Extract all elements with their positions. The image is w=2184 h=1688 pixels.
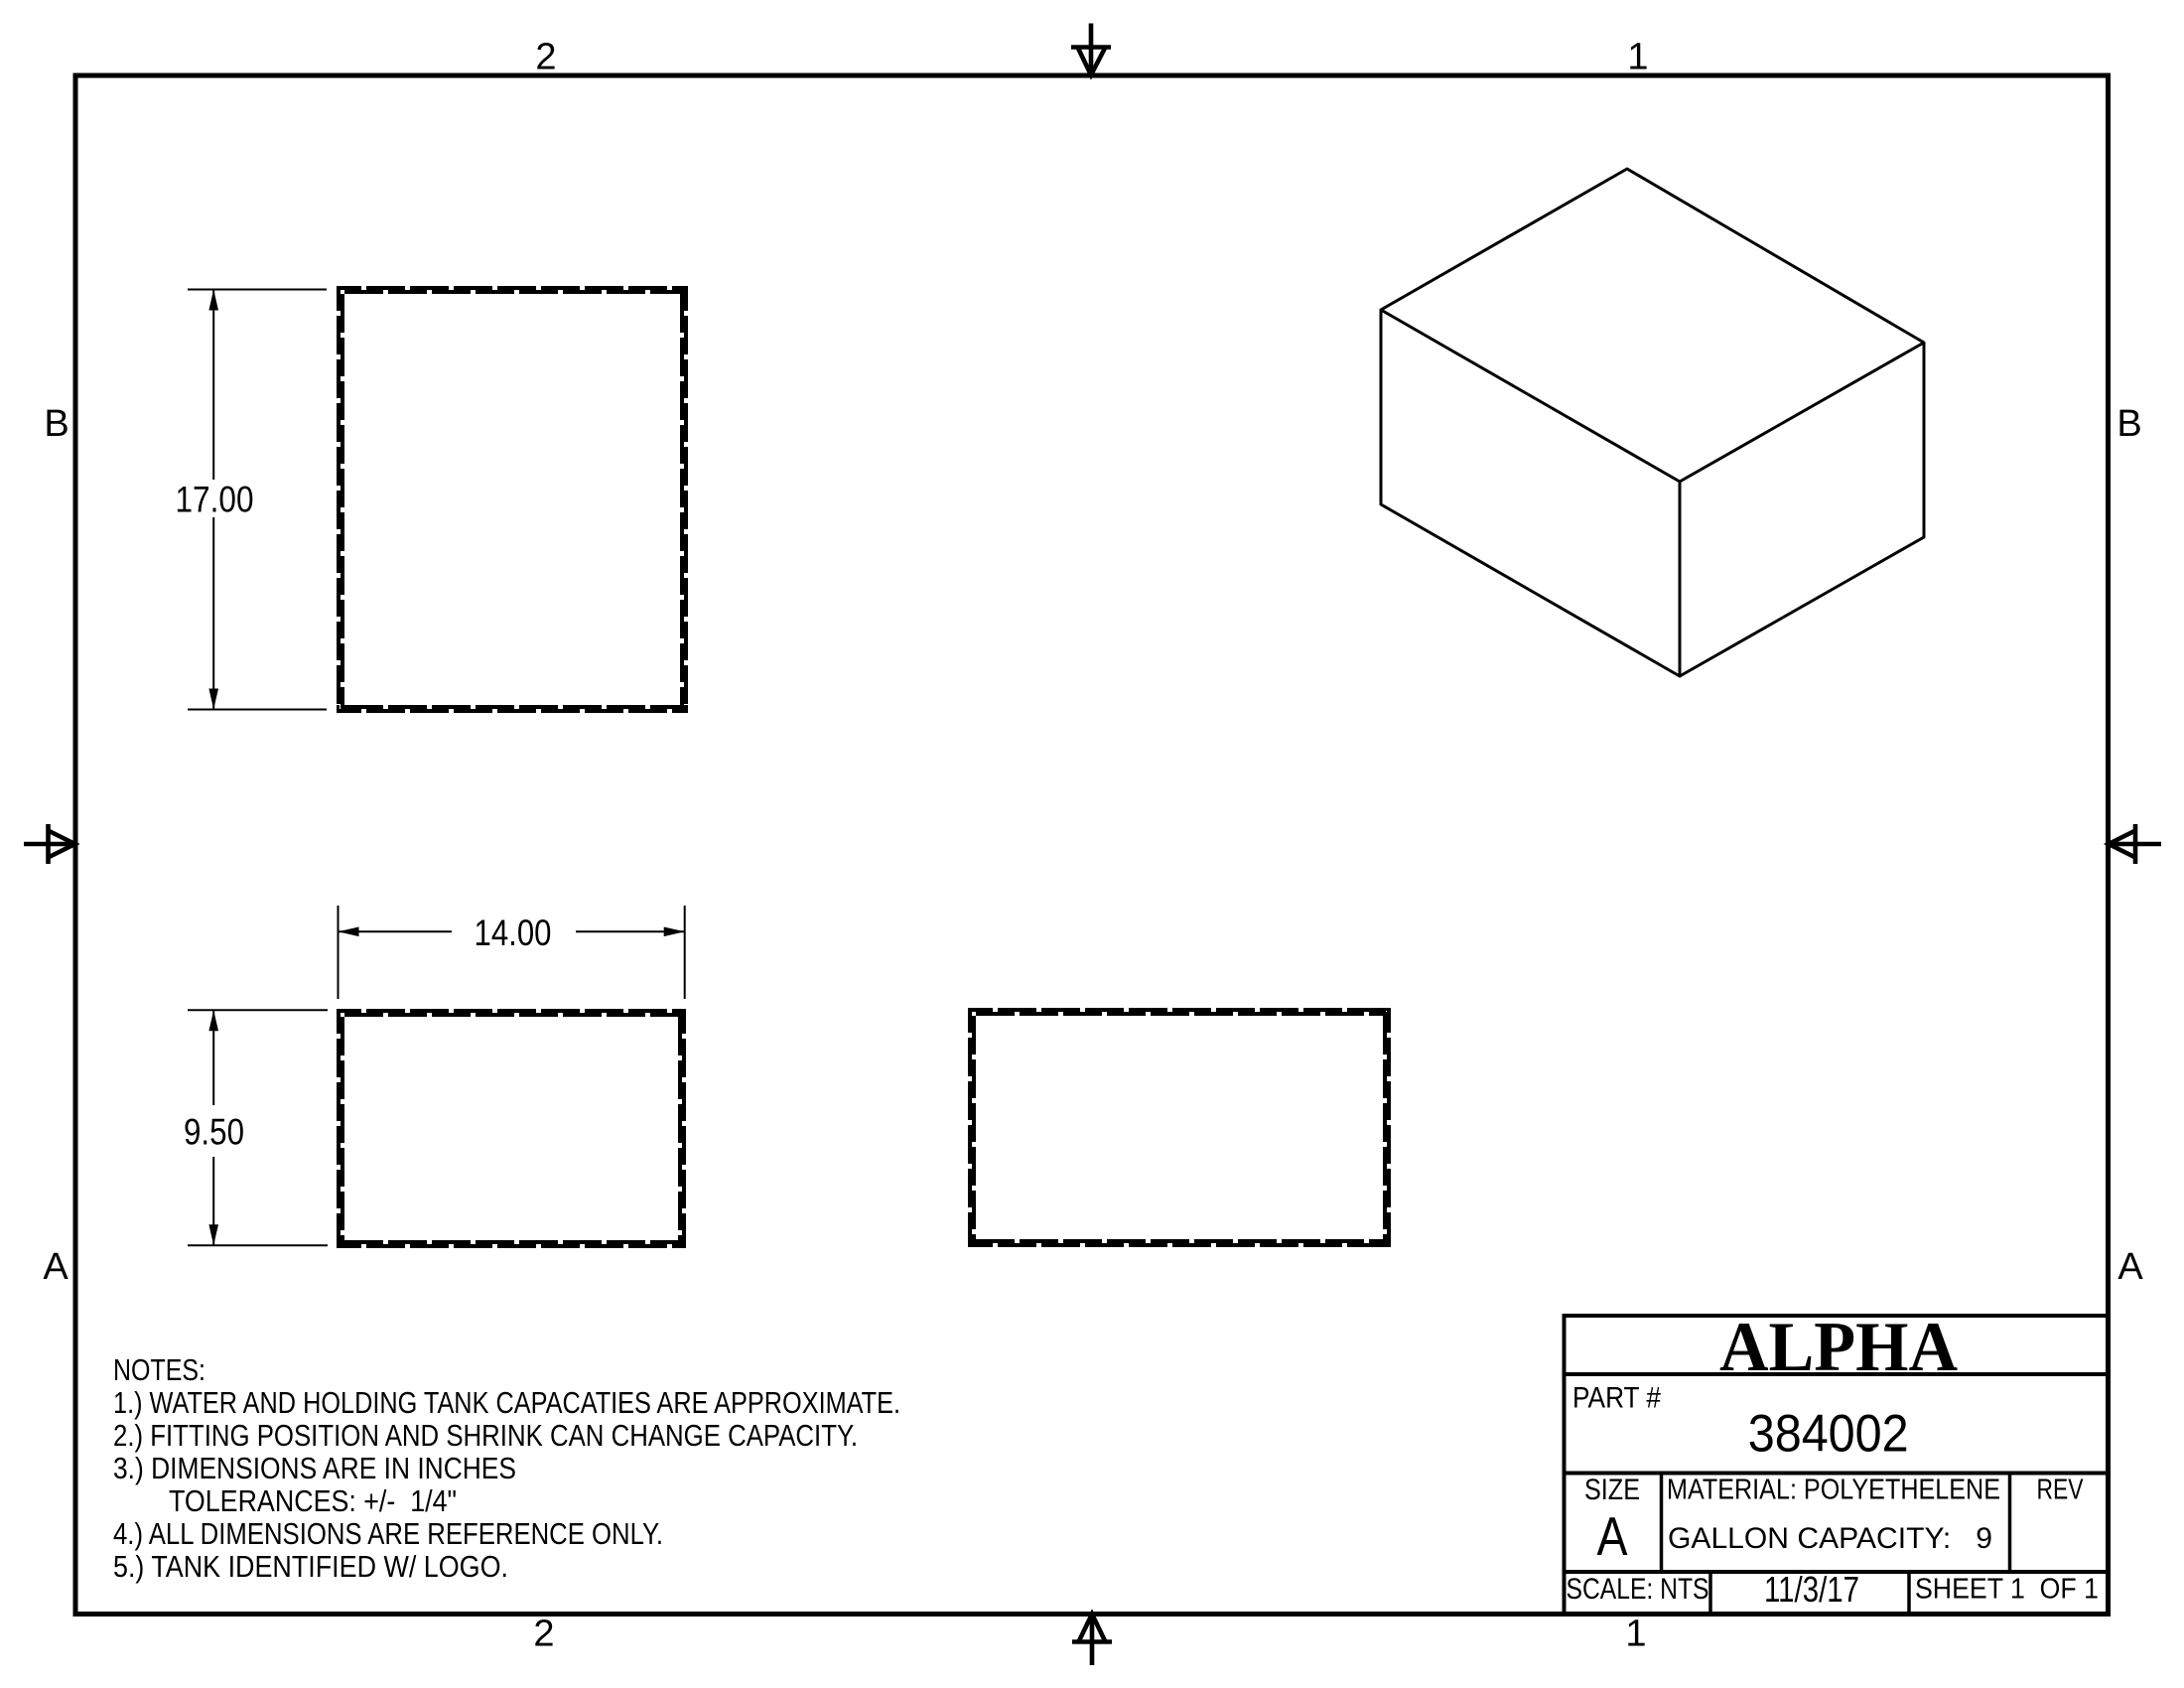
svg-text:A: A (2117, 1246, 2143, 1288)
svg-text:A: A (43, 1246, 68, 1288)
svg-text:SCALE: NTS: SCALE: NTS (1567, 1573, 1709, 1606)
svg-text:1: 1 (1627, 37, 1648, 78)
svg-text:17.00: 17.00 (176, 480, 254, 520)
svg-text:GALLON CAPACITY: 9: GALLON CAPACITY: 9 (1668, 1522, 1992, 1555)
svg-text:SIZE: SIZE (1584, 1474, 1640, 1506)
svg-text:384002: 384002 (1748, 1405, 1909, 1464)
svg-text:NOTES:: NOTES: (113, 1352, 205, 1387)
svg-text:PART #: PART # (1572, 1382, 1661, 1415)
svg-text:MATERIAL: POLYETHELENE: MATERIAL: POLYETHELENE (1667, 1475, 2000, 1506)
svg-text:3.) DIMENSIONS ARE IN INCHES: 3.) DIMENSIONS ARE IN INCHES (113, 1451, 516, 1485)
svg-text:2: 2 (535, 37, 556, 78)
svg-text:5.) TANK IDENTIFIED W/ LOGO.: 5.) TANK IDENTIFIED W/ LOGO. (113, 1549, 508, 1584)
svg-text:4.) ALL DIMENSIONS ARE REFEREN: 4.) ALL DIMENSIONS ARE REFERENCE ONLY. (113, 1516, 663, 1551)
svg-text:14.00: 14.00 (475, 913, 552, 953)
svg-text:11/3/17: 11/3/17 (1764, 1569, 1859, 1610)
svg-text:2.) FITTING POSITION AND SHRIN: 2.) FITTING POSITION AND SHRINK CAN CHAN… (113, 1418, 858, 1453)
svg-text:REV: REV (2037, 1475, 2085, 1506)
svg-text:A: A (1597, 1505, 1628, 1567)
svg-text:B: B (44, 403, 68, 445)
svg-text:2: 2 (533, 1614, 554, 1655)
svg-text:1.) WATER AND HOLDING TANK CAP: 1.) WATER AND HOLDING TANK CAPACATIES AR… (113, 1385, 900, 1420)
svg-text:TOLERANCES: +/- 1/4": TOLERANCES: +/- 1/4" (169, 1483, 457, 1518)
svg-text:9.50: 9.50 (184, 1112, 244, 1153)
svg-text:SHEET 1 OF 1: SHEET 1 OF 1 (1915, 1574, 2099, 1606)
svg-text:B: B (2116, 403, 2141, 445)
svg-text:1: 1 (1625, 1614, 1646, 1655)
svg-text:ALPHA: ALPHA (1719, 1309, 1958, 1386)
